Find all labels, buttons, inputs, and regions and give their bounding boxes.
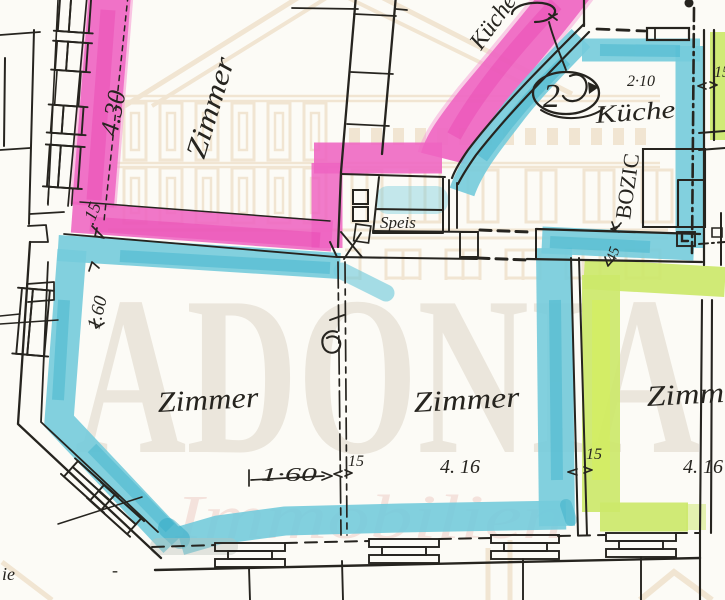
svg-text:-: -	[112, 560, 118, 580]
svg-text:Küche: Küche	[593, 96, 676, 129]
svg-text:Speis: Speis	[380, 213, 416, 232]
svg-text:15: 15	[714, 64, 725, 81]
svg-text:15: 15	[348, 453, 364, 470]
svg-text:Zimmer: Zimmer	[646, 375, 725, 413]
svg-text:ie: ie	[2, 564, 15, 584]
svg-text:Zimmer: Zimmer	[413, 381, 521, 419]
svg-text:15: 15	[586, 446, 602, 463]
svg-text:4. 16: 4. 16	[683, 456, 723, 478]
svg-text:2: 2	[543, 78, 560, 115]
svg-text:Zimmer: Zimmer	[157, 382, 260, 419]
svg-text:1·60: 1·60	[261, 464, 317, 486]
svg-text:4. 16: 4. 16	[440, 456, 480, 478]
svg-text:2·10: 2·10	[627, 73, 655, 90]
